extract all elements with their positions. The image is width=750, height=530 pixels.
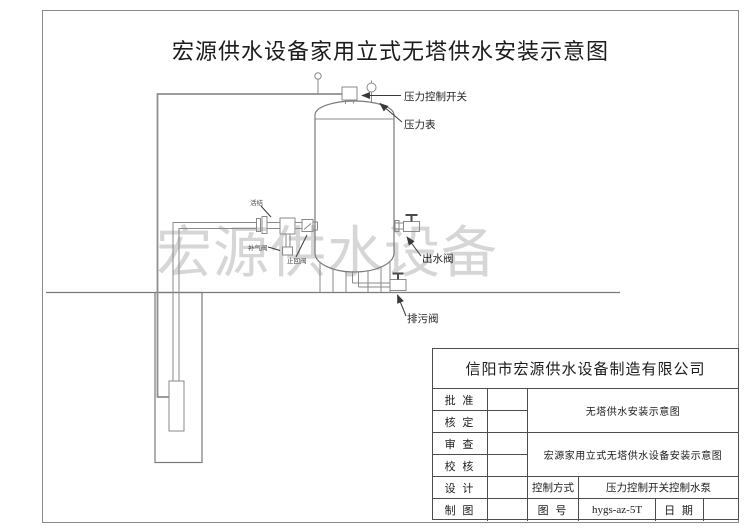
pressure-gauge-label: 压力表: [404, 118, 436, 131]
tee-fitting: [280, 218, 295, 234]
tank-bottom-dome: [315, 253, 394, 272]
pressure-gauge-icon: [367, 83, 376, 92]
title-block-company: 信阳市宏源供水设备制造有限公司: [433, 349, 738, 389]
air-valve-label: 补气阀: [248, 243, 268, 252]
review-value-cell: [488, 433, 528, 455]
leader-air-valve: [268, 247, 280, 251]
pressure-switch-body: [342, 87, 357, 100]
tank-legs: [320, 261, 390, 293]
outlet-flange: [395, 221, 399, 232]
verify-value-cell: [488, 411, 528, 433]
leader-outlet-valve: [407, 237, 421, 256]
riser-pipe: [173, 223, 256, 382]
check-valve-mark: [304, 224, 311, 230]
pipe-segment: [267, 223, 280, 229]
design-label-cell: 设 计: [433, 477, 488, 499]
control-mode-value-cell: 压力控制开关控制水泵: [579, 477, 738, 499]
union-label: 活结: [250, 198, 264, 207]
draft-label-cell: 制 图: [433, 499, 488, 521]
outlet-valve-label: 出水阀: [422, 252, 454, 265]
verify-label-cell: 核 定: [433, 411, 488, 433]
proof-label-cell: 校 核: [433, 455, 488, 477]
pipe-segment-2: [295, 223, 302, 229]
check-valve-label: 止回阀: [287, 256, 307, 265]
date-label-cell: 日 期: [656, 499, 704, 521]
proof-value-cell: [488, 455, 528, 477]
tank-top-dome: [315, 101, 394, 115]
power-connector-icon: [315, 73, 321, 79]
drawing-no-value-cell: hygs-az-5T: [579, 499, 656, 521]
air-valve-pipe: [286, 234, 290, 247]
union-fitting: [257, 219, 261, 232]
drawing-full-name-cell: 宏源家用立式无塔供水设备安装示意图: [528, 433, 738, 477]
air-valve-body: [283, 247, 293, 255]
drawing-name-cell: 无塔供水安装示意图: [528, 389, 738, 433]
drain-valve-label: 排污阀: [407, 312, 439, 325]
outlet-valve-body: [404, 222, 420, 232]
draft-value-cell: [488, 499, 528, 521]
approve-label-cell: 批 准: [433, 389, 488, 411]
leader-drain-valve: [398, 295, 407, 316]
drain-valve-body: [390, 280, 406, 291]
design-value-cell: [488, 477, 528, 499]
check-valve-body: [302, 220, 313, 232]
approve-value-cell: [488, 389, 528, 411]
pressure-switch-label: 压力控制开关: [404, 90, 467, 103]
tank-walls: [315, 115, 394, 253]
outlet-valve-handle: [406, 215, 418, 222]
leader-union: [261, 206, 271, 217]
drawing-no-label-cell: 图 号: [528, 499, 579, 521]
control-mode-label-cell: 控制方式: [528, 477, 579, 499]
title-block: 信阳市宏源供水设备制造有限公司 批 准 核 定 无塔供水安装示意图 审 查 校 …: [432, 348, 739, 520]
date-value-cell: [704, 499, 738, 521]
pump-body: [169, 381, 184, 431]
union-collar: [262, 217, 267, 234]
leader-check-valve: [296, 235, 307, 257]
review-label-cell: 审 查: [433, 433, 488, 455]
drain-valve-handle: [393, 274, 404, 280]
drain-pipe: [353, 271, 391, 287]
